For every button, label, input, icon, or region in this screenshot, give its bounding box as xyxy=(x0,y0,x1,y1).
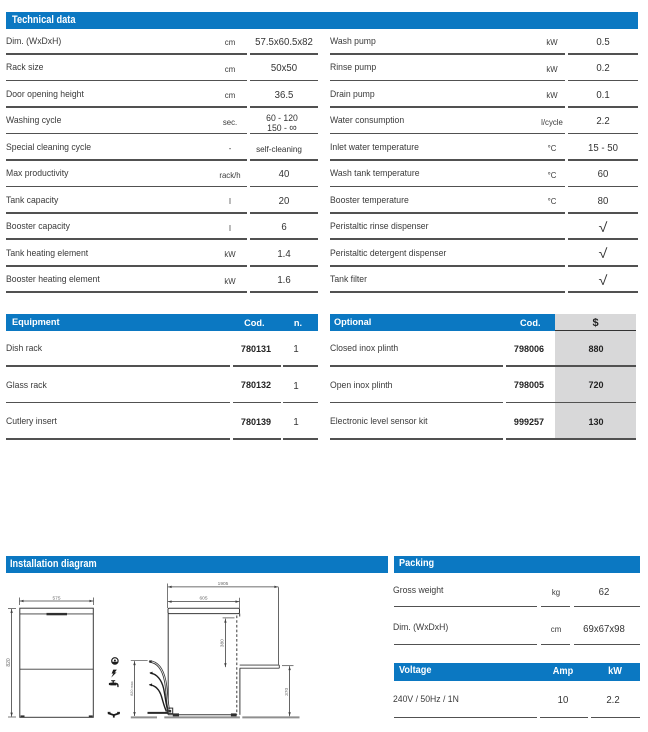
svg-text:820 max: 820 max xyxy=(130,681,134,696)
svg-text:380: 380 xyxy=(220,639,226,647)
svg-text:1905: 1905 xyxy=(218,581,229,587)
svg-text:820: 820 xyxy=(6,658,12,667)
svg-text:605: 605 xyxy=(199,596,207,602)
svg-text:370: 370 xyxy=(284,687,290,695)
svg-text:575: 575 xyxy=(52,595,60,601)
